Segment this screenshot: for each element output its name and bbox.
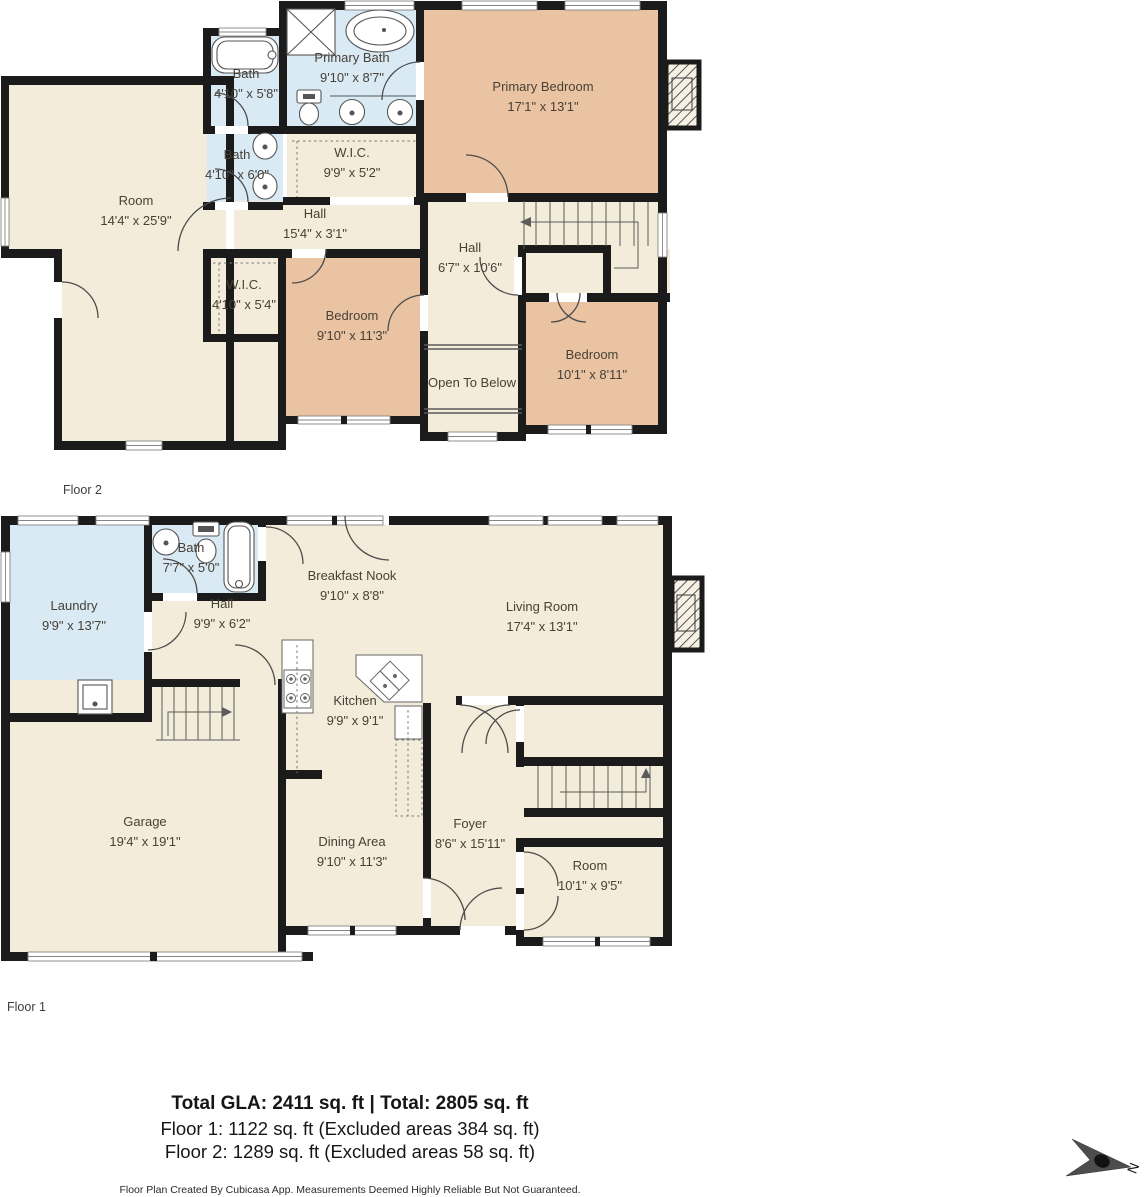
room-label-wic1: W.I.C.9'9" x 5'2": [324, 143, 381, 182]
room-label-laundry: Laundry9'9" x 13'7": [42, 596, 106, 635]
floorplan-page: Bath4'10" x 5'8" Primary Bath9'10" x 8'7…: [0, 0, 1147, 1197]
room-label-open-to-below: Open To Below: [428, 373, 516, 393]
floor1-caption: Floor 1: [7, 1000, 46, 1014]
north-arrow-icon: [1066, 1139, 1131, 1176]
room-label-garage: Garage19'4" x 19'1": [109, 812, 180, 851]
room-label-breakfast-nook: Breakfast Nook9'10" x 8'8": [308, 566, 397, 605]
room-label-wic2: W.I.C.4'10" x 5'4": [212, 275, 276, 314]
room-label-kitchen: Kitchen9'9" x 9'1": [327, 691, 384, 730]
room-label-bedroom1: Bedroom9'10" x 11'3": [317, 306, 387, 345]
room-label-hall-v: Hall6'7" x 10'6": [438, 238, 502, 277]
floor1-area-text: Floor 1: 1122 sq. ft (Excluded areas 384…: [0, 1118, 700, 1140]
room-label-foyer: Foyer8'6" x 15'11": [435, 814, 505, 853]
room-label-primary-bath: Primary Bath9'10" x 8'7": [314, 48, 389, 87]
room-label-hall-f1: Hall9'9" x 6'2": [194, 594, 251, 633]
floor2-caption: Floor 2: [63, 483, 102, 497]
room-label-dining-area: Dining Area9'10" x 11'3": [317, 832, 387, 871]
total-gla-text: Total GLA: 2411 sq. ft | Total: 2805 sq.…: [0, 1093, 700, 1115]
room-label-bath-f1: Bath7'7" x 5'0": [163, 538, 220, 577]
floor2-area-text: Floor 2: 1289 sq. ft (Excluded areas 58 …: [0, 1141, 700, 1163]
room-label-bath-mid: Bath4'10" x 6'0": [205, 145, 269, 184]
disclaimer-text: Floor Plan Created By Cubicasa App. Meas…: [0, 1184, 700, 1196]
room-label-room-f1: Room10'1" x 9'5": [558, 856, 622, 895]
room-label-room-f2: Room14'4" x 25'9": [100, 191, 171, 230]
room-label-primary-bedroom: Primary Bedroom17'1" x 13'1": [492, 77, 593, 116]
room-label-bedroom2: Bedroom10'1" x 8'11": [557, 345, 627, 384]
room-label-hall-h: Hall15'4" x 3'1": [283, 204, 347, 243]
room-label-bath-upper: Bath4'10" x 5'8": [214, 64, 278, 103]
room-label-living-room: Living Room17'4" x 13'1": [506, 597, 578, 636]
